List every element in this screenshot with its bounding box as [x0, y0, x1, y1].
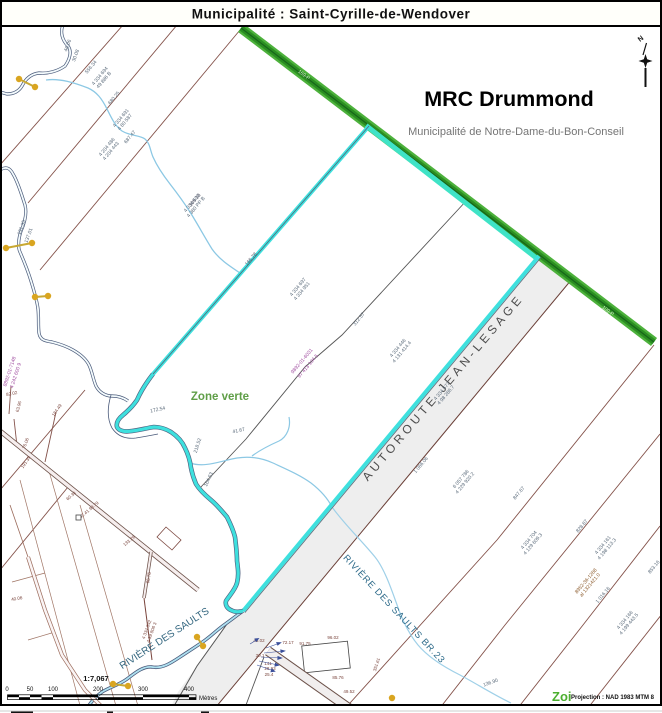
svg-text:85.76: 85.76	[332, 675, 344, 680]
svg-text:Mètres: Mètres	[199, 696, 217, 702]
svg-text:25.4: 25.4	[265, 672, 274, 677]
svg-text:200: 200	[93, 687, 104, 693]
svg-text:Municipalité : Saint-Cyrille-d: Municipalité : Saint-Cyrille-de-Wendover	[192, 7, 471, 22]
svg-text:Projection : NAD 1983 MTM 8: Projection : NAD 1983 MTM 8	[571, 695, 655, 701]
svg-text:1:7,067: 1:7,067	[83, 674, 108, 683]
svg-text:96.02: 96.02	[327, 635, 339, 640]
svg-text:49.52: 49.52	[343, 689, 355, 694]
svg-text:100: 100	[48, 687, 59, 693]
svg-text:300: 300	[138, 687, 149, 693]
svg-text:Zone verte: Zone verte	[191, 391, 249, 403]
svg-text:MRC Drummond: MRC Drummond	[424, 87, 594, 111]
svg-text:72.17: 72.17	[282, 640, 294, 645]
svg-text:Municipalité de Notre-Dame-du-: Municipalité de Notre-Dame-du-Bon-Consei…	[408, 126, 624, 138]
svg-text:50: 50	[27, 687, 34, 693]
svg-text:400: 400	[184, 687, 195, 693]
svg-text:Zoi: Zoi	[552, 689, 572, 704]
